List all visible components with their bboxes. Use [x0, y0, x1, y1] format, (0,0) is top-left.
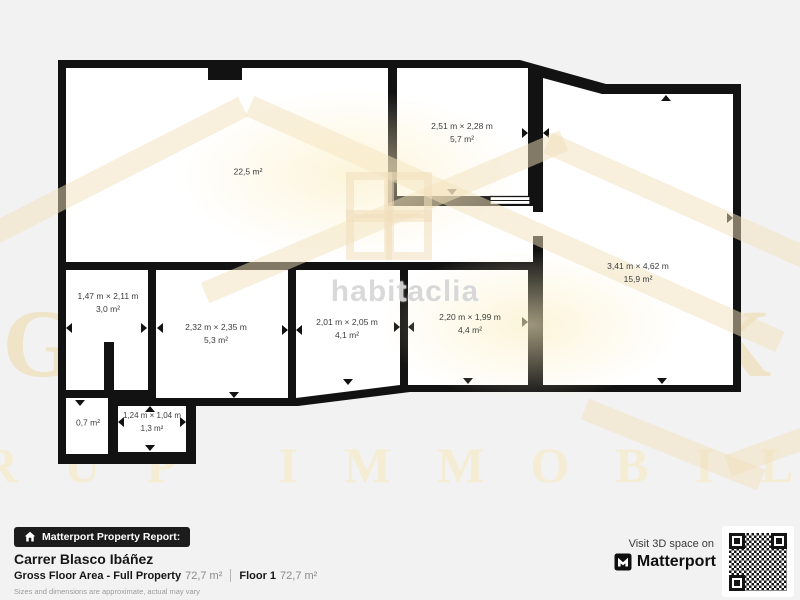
gross-floor-area-label: Gross Floor Area - Full Property: [14, 570, 181, 582]
area-summary: Gross Floor Area - Full Property 72,7 m²…: [14, 569, 317, 582]
room-area: 5,3 m²: [185, 334, 247, 347]
room-dimensions: 1,24 m × 1,04 m: [123, 409, 181, 422]
room-dimensions: 2,51 m × 2,28 m: [431, 120, 493, 133]
room-dimensions: 3,41 m × 4,62 m: [607, 260, 669, 273]
room-dimensions: 1,47 m × 2,11 m: [77, 290, 138, 303]
room-label-right: 3,41 m × 4,62 m 15,9 m²: [607, 260, 669, 286]
room-label-top: 2,51 m × 2,28 m 5,7 m²: [431, 120, 493, 146]
room-area: 22,5 m²: [234, 166, 263, 179]
wall-notch: [208, 68, 242, 80]
watermark-logo-pane: [386, 210, 432, 260]
divider: [230, 569, 231, 582]
room-area: 1,3 m²: [123, 422, 181, 435]
room-label-small-1: 0,7 m²: [76, 417, 100, 430]
visit-3d-text: Visit 3D space on: [629, 538, 714, 550]
qr-code: [729, 533, 787, 591]
room-area: 15,9 m²: [607, 273, 669, 286]
room-label-mid-1: 2,32 m × 2,35 m 5,3 m²: [185, 321, 247, 347]
house-icon: [24, 531, 36, 543]
matterport-brand: Matterport: [614, 553, 716, 571]
qr-finder: [771, 533, 787, 549]
room-dimensions: 2,01 m × 2,05 m: [316, 316, 378, 329]
property-report-page: GOLDMARK RUP IMMOBILIAR: [0, 0, 800, 600]
room-area: 4,4 m²: [439, 324, 501, 337]
watermark-habitaclia: habitaclia: [331, 275, 479, 309]
floor-value: 72,7 m²: [280, 570, 317, 582]
qr-finder: [729, 575, 745, 591]
room-area: 0,7 m²: [76, 417, 100, 430]
wall-stub: [104, 342, 114, 398]
room-area: 3,0 m²: [77, 303, 138, 316]
room-label-small-2: 1,24 m × 1,04 m 1,3 m²: [123, 409, 181, 435]
matterport-logo-icon: [614, 553, 632, 571]
room-area: 5,7 m²: [431, 133, 493, 146]
report-badge-label: Matterport Property Report:: [42, 531, 180, 543]
room-label-left: 1,47 m × 2,11 m 3,0 m²: [77, 290, 138, 316]
room-dimensions: 2,32 m × 2,35 m: [185, 321, 247, 334]
room-dimensions: 2,20 m × 1,99 m: [439, 311, 501, 324]
floor-label: Floor 1: [239, 570, 276, 582]
report-badge: Matterport Property Report:: [14, 527, 190, 547]
qr-finder: [729, 533, 745, 549]
property-name: Carrer Blasco Ibáñez: [14, 551, 153, 567]
matterport-brand-label: Matterport: [637, 553, 716, 571]
disclaimer-text: Sizes and dimensions are approximate, ac…: [14, 587, 200, 596]
room-label-mid-3: 2,20 m × 1,99 m 4,4 m²: [439, 311, 501, 337]
room-area: 4,1 m²: [316, 329, 378, 342]
room-label-living: 22,5 m²: [234, 166, 263, 179]
room-label-mid-2: 2,01 m × 2,05 m 4,1 m²: [316, 316, 378, 342]
gross-floor-area-value: 72,7 m²: [185, 570, 222, 582]
